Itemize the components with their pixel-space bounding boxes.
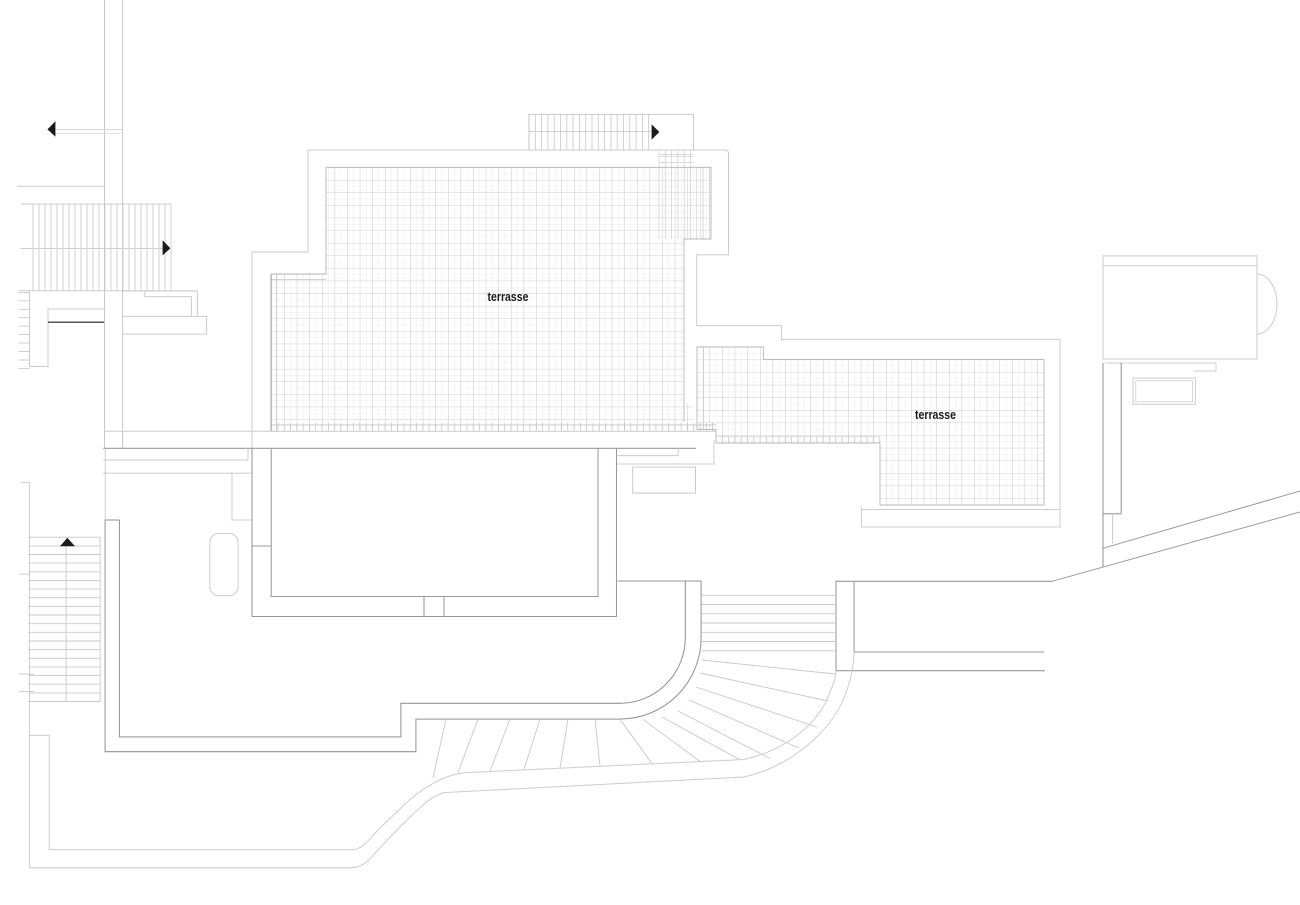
svg-text:terrasse: terrasse [488,289,529,304]
svg-text:terrasse: terrasse [915,407,956,422]
